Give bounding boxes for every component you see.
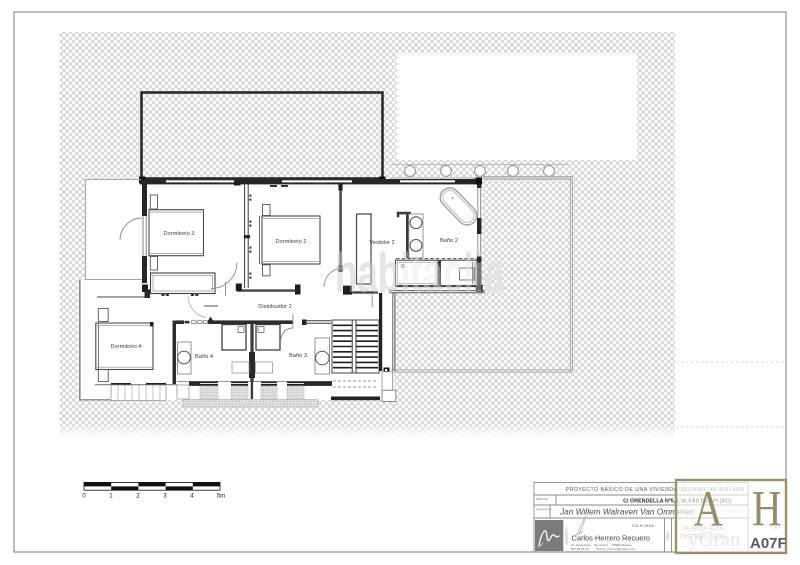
svg-text:PROMOTOR: PROMOTOR [536,508,551,512]
svg-text:Carlos Herrero Recuero: Carlos Herrero Recuero [572,533,650,542]
svg-text:Distribuidor 2: Distribuidor 2 [258,304,292,310]
svg-text:0: 0 [82,493,86,500]
svg-text:EMPLAZA.: EMPLAZA. [536,497,549,501]
svg-text:A: A [694,480,723,536]
svg-text:H: H [752,480,781,536]
svg-text:PLANO: PLANO [665,532,669,541]
svg-text:A07F: A07F [750,535,787,552]
svg-text:3: 3 [163,493,167,500]
svg-text:Dormitorio 2: Dormitorio 2 [276,239,307,245]
svg-text:607 66 65 98 herrero_r: 607 66 65 98 herrero_recuero@yahoo.com [571,547,636,551]
svg-text:4: 4 [190,493,194,500]
svg-text:COL Nº 36118: COL Nº 36118 [632,524,654,528]
svg-text:Dormitorio 4: Dormitorio 4 [111,344,142,350]
svg-text:Baño 4: Baño 4 [195,354,213,360]
svg-text:ARQUITECTO: ARQUITECTO [565,528,569,545]
svg-text:Dormitorio 3: Dormitorio 3 [164,231,195,237]
svg-text:Baño 3: Baño 3 [289,353,307,359]
svg-text:1: 1 [109,493,113,500]
svg-text:habitaclia: habitaclia [335,242,505,305]
svg-text:5m: 5m [217,493,226,500]
svg-text:2: 2 [136,493,140,500]
svg-text:Jan Willem Walraven Van Ommere: Jan Willem Walraven Van Ommeren [559,507,694,517]
